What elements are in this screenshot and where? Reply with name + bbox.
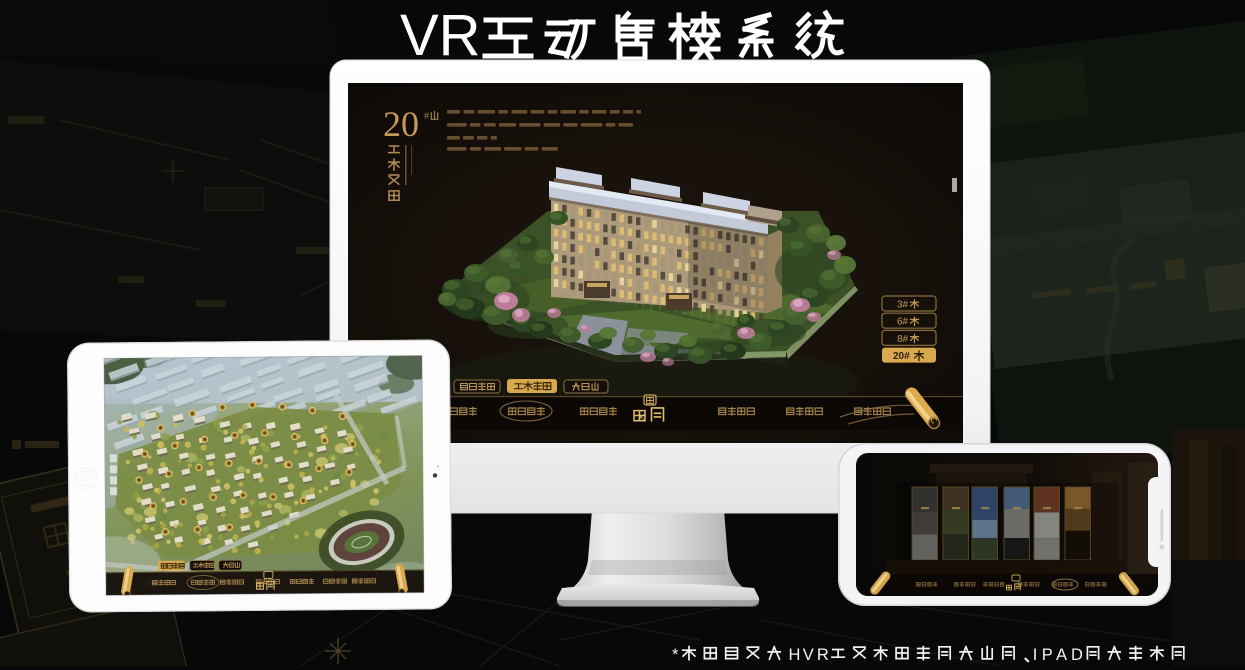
svg-text:D: D	[1071, 646, 1083, 664]
svg-text:P: P	[1042, 646, 1053, 664]
svg-text:3#: 3#	[897, 300, 909, 311]
svg-text:20#: 20#	[893, 351, 910, 362]
svg-text:#: #	[424, 111, 429, 121]
svg-text:V: V	[803, 646, 814, 664]
svg-text:I: I	[1033, 646, 1038, 664]
svg-text:20: 20	[383, 104, 419, 144]
svg-text:H: H	[789, 646, 801, 664]
svg-text:8#: 8#	[897, 334, 909, 345]
svg-text:*: *	[672, 646, 679, 664]
svg-text:6#: 6#	[897, 317, 909, 328]
svg-text:A: A	[1056, 646, 1067, 664]
svg-text:R: R	[817, 646, 829, 664]
